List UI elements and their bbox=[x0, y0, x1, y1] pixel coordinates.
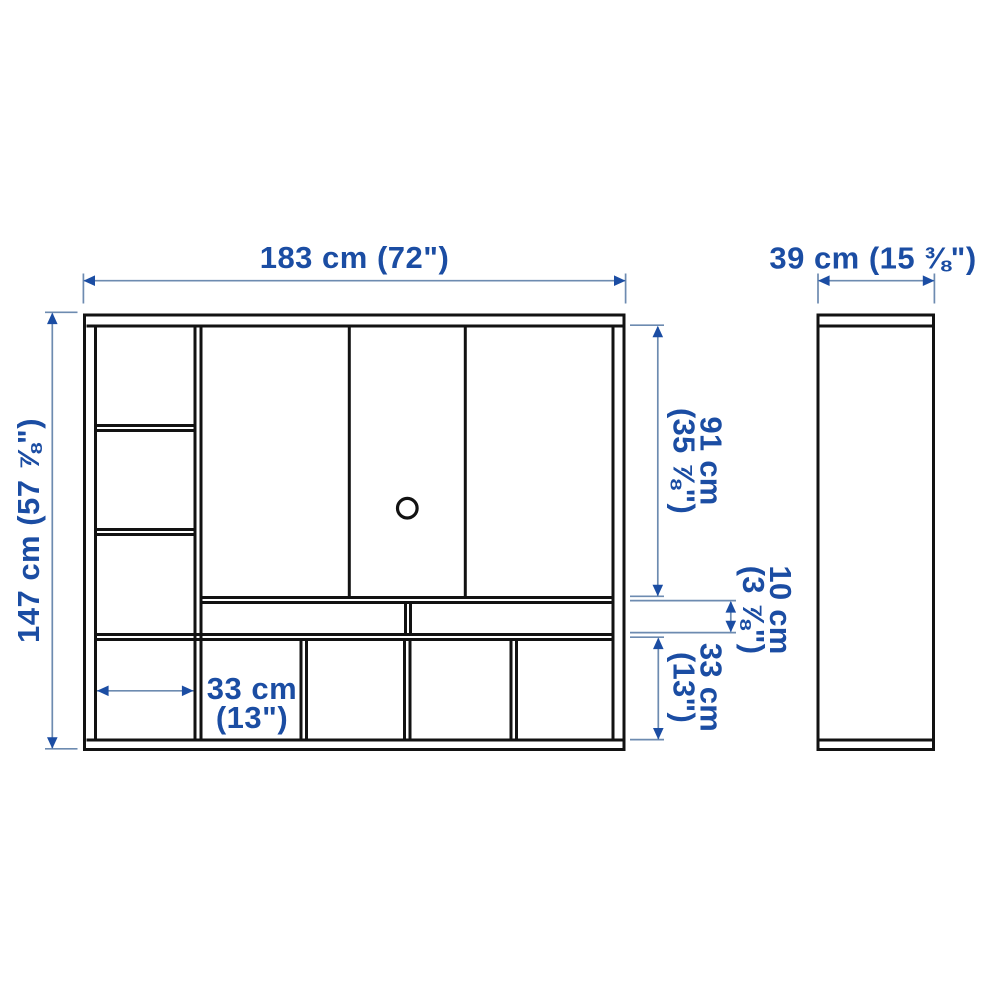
svg-text:33 cm(13"): 33 cm(13") bbox=[667, 643, 729, 732]
svg-text:10 cm(3 ⅞"): 10 cm(3 ⅞") bbox=[736, 565, 798, 654]
svg-text:39 cm (15 ⅜"): 39 cm (15 ⅜") bbox=[769, 241, 976, 276]
svg-text:91 cm(35 ⅞"): 91 cm(35 ⅞") bbox=[667, 408, 729, 514]
svg-text:33 cm(13"): 33 cm(13") bbox=[207, 671, 297, 735]
svg-text:147 cm (57 ⅞"): 147 cm (57 ⅞") bbox=[11, 418, 46, 643]
svg-text:183 cm (72"): 183 cm (72") bbox=[260, 240, 450, 275]
